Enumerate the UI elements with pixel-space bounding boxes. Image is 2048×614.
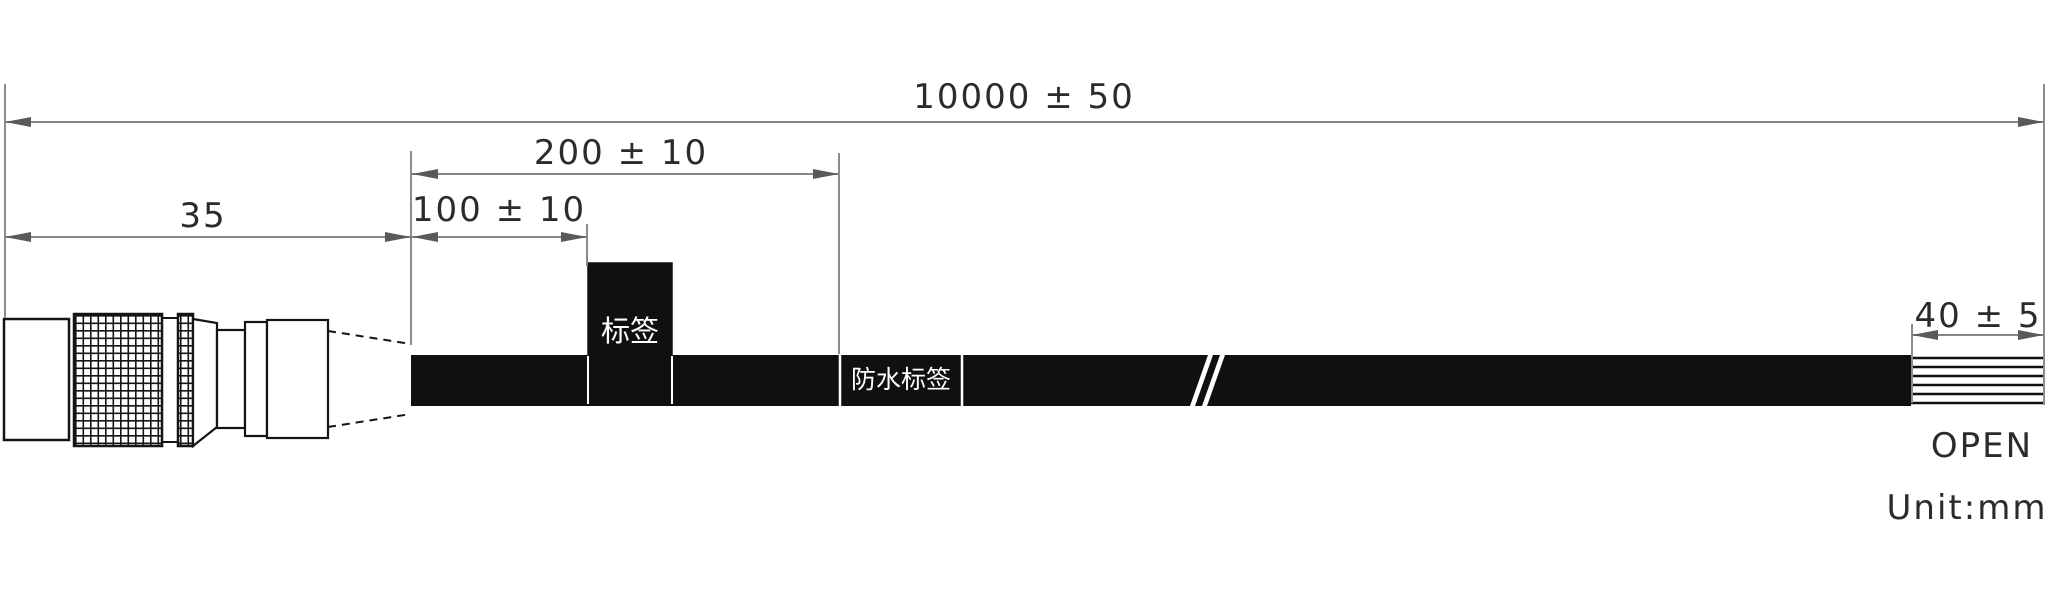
connector-knurled-ring-small — [178, 314, 193, 446]
connector-knurled-ring-large — [74, 314, 162, 446]
engineering-drawing-canvas: 10000 ± 50 35 200 ± 10 100 ± 10 40 ± 5 标… — [0, 0, 2048, 614]
dimension-text-strip-length: 40 ± 5 — [1808, 299, 2048, 333]
dimension-line-overall — [5, 121, 2044, 123]
dimension-text-label-distance: 100 ± 10 — [329, 193, 669, 227]
extension-line-right — [2043, 84, 2045, 405]
unit-note: Unit:mm — [1797, 491, 2048, 525]
connector-neck — [217, 330, 245, 428]
open-end-label: OPEN — [1812, 429, 2048, 463]
arrowhead-icon — [813, 169, 839, 179]
arrowhead-icon — [5, 117, 31, 127]
dimension-text-waterproof-distance: 200 ± 10 — [451, 136, 791, 170]
boot-taper-bottom-edge — [328, 414, 411, 427]
extension-line-waterproof-label — [838, 153, 840, 354]
arrowhead-icon — [561, 232, 587, 242]
dimension-line-200 — [411, 173, 839, 175]
stripped-wires — [1911, 358, 2045, 403]
cable-label-text: 标签 — [588, 316, 672, 348]
dimension-line-35 — [5, 236, 411, 238]
connector-back-cap — [4, 319, 69, 440]
arrowhead-icon — [385, 232, 411, 242]
connector-collar — [245, 322, 267, 436]
arrowhead-icon — [412, 232, 438, 242]
connector-boot — [267, 320, 328, 438]
dimension-text-overall: 10000 ± 50 — [854, 80, 1194, 114]
extension-line-label — [586, 224, 588, 266]
connector-groove — [163, 318, 178, 442]
arrowhead-icon — [412, 169, 438, 179]
extension-line-cable-start — [410, 151, 412, 345]
arrowhead-icon — [5, 232, 31, 242]
arrowhead-icon — [2018, 117, 2044, 127]
waterproof-label-text: 防水标签 — [840, 366, 962, 394]
connector-nose-taper — [193, 319, 217, 446]
dimension-text-connector-length: 35 — [33, 199, 373, 233]
boot-taper-top-edge — [328, 331, 411, 344]
